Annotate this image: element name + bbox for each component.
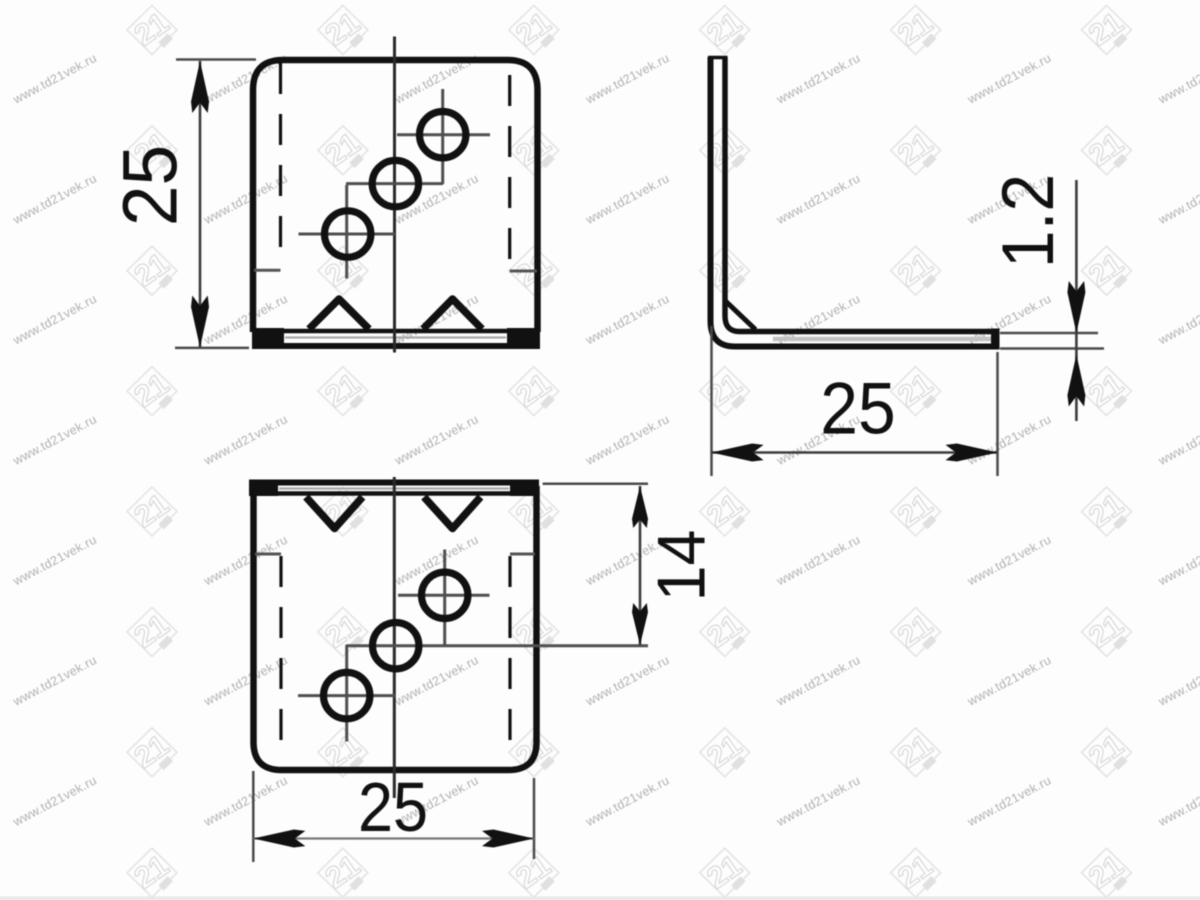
svg-text:14: 14 [644,530,720,602]
svg-text:25: 25 [107,145,193,226]
svg-text:25: 25 [358,769,428,847]
svg-text:1.2: 1.2 [987,174,1069,268]
svg-text:25: 25 [820,367,896,449]
